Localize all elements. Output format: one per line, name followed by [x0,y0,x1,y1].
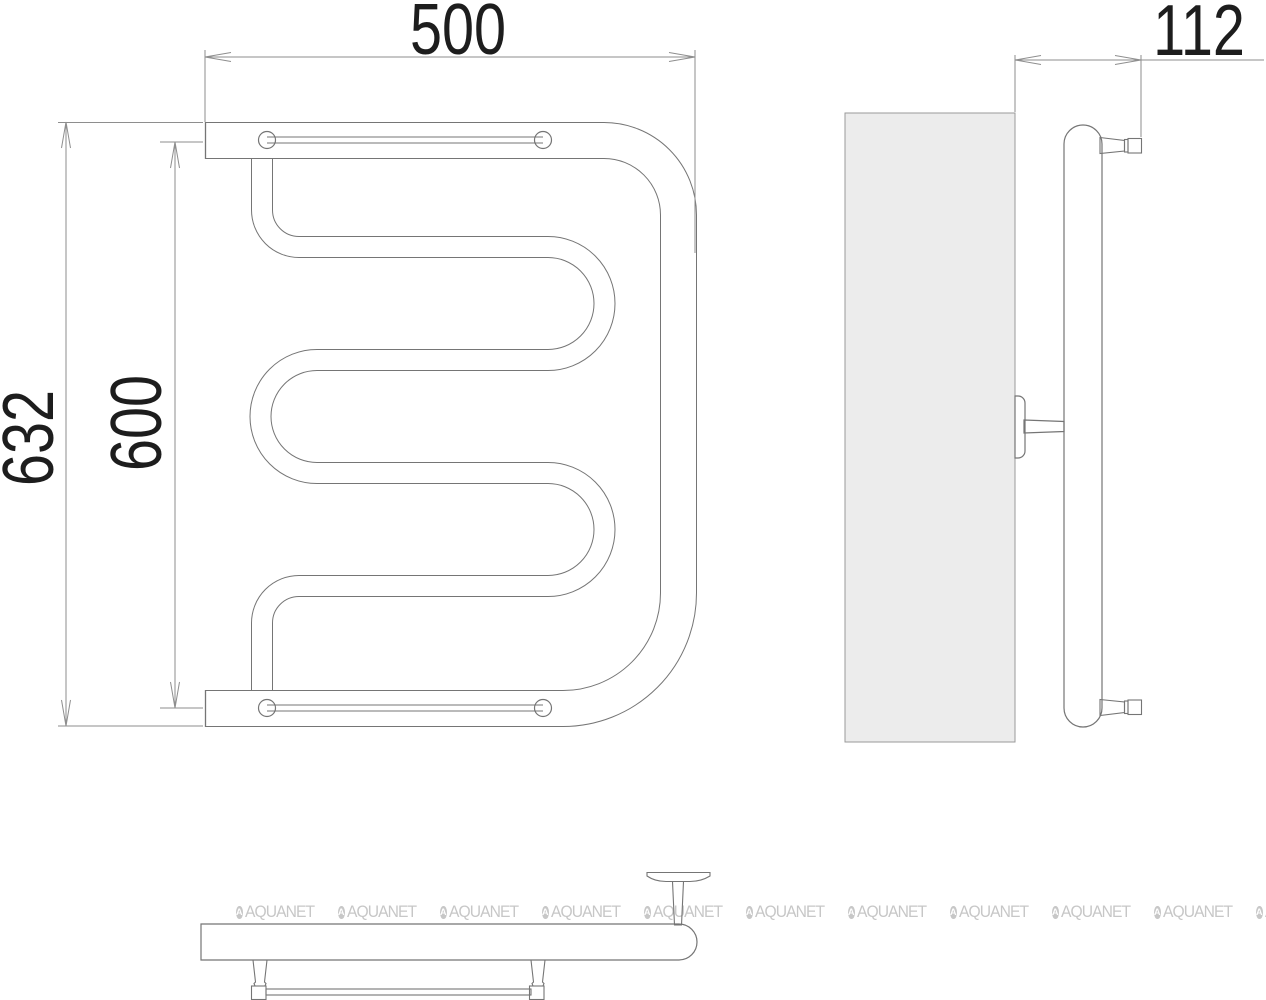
dim-text-width: 500 [410,0,506,69]
towel-rail-drawing: 500 112 632 600 [0,0,1266,1000]
dimension-annotations: 500 112 632 600 [0,0,1264,726]
serpentine-tube-outline [261,152,605,700]
rod-top-view [266,989,531,995]
dim-text-inner-height: 600 [96,375,177,471]
serpentine-tube-fill [261,152,605,700]
bottom-fitting [1100,700,1142,716]
technical-drawing-canvas: AAQUANET AAQUANET AAQUANET AAQUANET AAQU… [0,0,1266,1000]
dim-text-overall-height: 632 [0,390,68,486]
wall-section [845,113,1015,742]
bottom-bracket-flange [647,873,710,882]
dim-text-depth: 112 [1153,0,1245,70]
rod-foot [252,986,267,1000]
front-view [205,122,679,727]
side-view [845,113,1142,742]
bottom-fitting-nut [1128,700,1142,715]
top-fitting [1100,138,1142,154]
rod-leg [253,960,267,986]
bottom-bracket-stem [673,882,684,926]
tube-top-view [201,924,697,960]
bottom-fitting-taper [1100,700,1125,716]
top-fitting-nut [1128,139,1142,154]
rod-foot [530,986,545,1000]
top-fitting-taper [1100,138,1125,154]
bottom-view [201,873,710,1000]
bracket-stem [1024,420,1064,433]
tube-profile [1064,125,1102,727]
rod-leg [531,960,545,986]
